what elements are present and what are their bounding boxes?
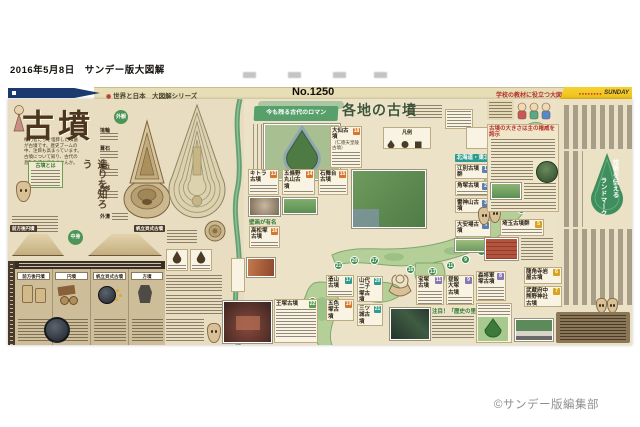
spot-note: 注目！「歴史の里」: [432, 307, 482, 315]
green-mound-photo: [283, 198, 317, 214]
kofun-name: 江別古墳群: [457, 166, 481, 179]
kofun-name: 武蔵府中熊野神社古墳: [526, 288, 552, 307]
kofun-card-text: [320, 185, 346, 195]
keyhole-mini-card: [190, 249, 212, 271]
gold-ornament-icon: [115, 298, 118, 301]
kofun-name: 造山古墳: [328, 277, 344, 290]
article-vertical-text: [562, 151, 583, 227]
sidebar-article-text: [491, 139, 555, 159]
date-line: 2016年5月8日 サンデー版大図解: [10, 62, 165, 76]
photo-caption: [521, 238, 553, 260]
kofun-card: キトラ古墳13: [248, 169, 279, 195]
column-divider: [128, 269, 129, 345]
copyright-credit: ©サンデー版編集部: [494, 396, 614, 412]
wall-painting-note: 壁画が有名: [249, 218, 277, 226]
sidebar-article-heading: 古墳の大きさは主の権威を誇示: [489, 126, 557, 138]
kofun-number-badge: 5: [535, 221, 542, 228]
pot-icon: [60, 296, 69, 305]
wall-painting-photo: [247, 258, 275, 277]
map-legend-box: 凡例: [383, 127, 431, 149]
kofun-card: 龍角寺岩屋古墳6: [524, 267, 562, 284]
kofun-card: 昼飯大塚古墳9: [446, 275, 474, 305]
timeline-caption: [132, 319, 163, 341]
kofun-card: 森将軍塚古墳8: [476, 271, 506, 301]
sidebar-article-text: [491, 161, 533, 181]
tomb-type-label: 前方後円墳: [17, 272, 50, 280]
label-funkyu-note: [100, 169, 118, 176]
kofun-card: 王塚古墳22: [274, 299, 318, 343]
bronze-mirror-icon: [98, 286, 116, 304]
kofun-card: 高松塚古墳16: [249, 226, 280, 248]
pot-icon: [69, 296, 78, 305]
dark-aerial-photo: [390, 308, 430, 340]
footnote-text: [560, 315, 626, 340]
article-keyhole-graphic: 技術を伝える ランドマーク: [585, 151, 629, 227]
kofun-card-text: [276, 309, 316, 339]
kofun-card-text: [448, 297, 472, 305]
sidebar-article-text: [524, 183, 556, 199]
kofun-card-text: [526, 283, 560, 284]
west-column-text: [166, 275, 222, 291]
kofun-name: 宝塚古墳: [418, 277, 434, 290]
kofun-card-text: [250, 185, 277, 195]
kofun-number-badge: 14: [306, 171, 313, 178]
water-area: [353, 209, 379, 227]
article-vertical-text: [562, 229, 632, 305]
page-body: 古墳 権力者たちを埋葬した墳墓が古墳です。歴史ブームの中、注目も高まっています。…: [8, 99, 632, 345]
dots-ornament: ●●●●●●●●: [579, 91, 602, 96]
mirror-photo: [44, 317, 70, 343]
kofun-card: 大仙古墳18 （仁徳天皇陵古墳）: [330, 126, 362, 168]
kofun-name: 王塚古墳: [276, 301, 298, 307]
kofun-card-text: [328, 291, 352, 297]
map-note-box: [466, 127, 488, 149]
kofun-card: 五色塚古墳19: [326, 299, 354, 321]
stone-chamber-photo: [249, 197, 280, 216]
kofun-number-badge: 6: [553, 269, 560, 276]
gold-ornament-icon: [116, 289, 119, 292]
kofun-card: 山代二子塚古墳20: [357, 276, 383, 302]
kofun-number-badge: 18: [353, 128, 360, 135]
kofun-card: 角塚古墳2: [455, 181, 491, 196]
kofun-name: 埼玉古墳群: [502, 221, 530, 227]
definition-box-text: [31, 170, 60, 187]
terraced-site-photo: [485, 238, 518, 260]
pottery-icon: [22, 285, 33, 303]
kofun-card: 五條野丸山古墳14: [282, 169, 315, 195]
issue-number: No.1250: [292, 86, 334, 98]
region-header: 北海道・東北: [455, 154, 491, 162]
kofun-number-badge: 9: [465, 277, 472, 284]
mound-cutaway-illustration: [120, 107, 170, 225]
map-marker: 9: [461, 255, 470, 264]
pennant-square: [12, 91, 16, 95]
newspaper-scan: 2016年5月8日 サンデー版大図解 ◉ 世界と日本 大図解シリーズ No.12…: [0, 0, 640, 427]
boat-haniwa-illustration: [385, 267, 415, 307]
train-photo: [515, 319, 553, 341]
brand-label: SUNDAY: [604, 90, 629, 96]
field-photo: [491, 183, 521, 199]
timeline-spine: [8, 261, 15, 345]
registration-mark: [374, 72, 387, 78]
kofun-definition-box: 古墳とは: [28, 161, 63, 188]
masthead-bar: ◉ 世界と日本 大図解シリーズ No.1250 学校の教材に役立つ大図解 ●●●…: [8, 87, 632, 99]
kofun-card-text: [418, 291, 442, 305]
photo-caption-vertical: [231, 258, 245, 292]
wood-artifact-icon: [57, 285, 75, 296]
keyhole-shape: [585, 151, 629, 227]
kofun-card: 宝塚古墳11: [416, 275, 444, 305]
kofun-card-text: [502, 229, 542, 236]
mini-card-text: [192, 265, 210, 270]
kofun-name: 大安場古墳: [457, 222, 481, 235]
kofun-name: 大仙古墳: [332, 128, 352, 141]
kofun-number-badge: 16: [271, 228, 278, 235]
kofun-number-badge: 15: [339, 171, 346, 178]
series-label: ◉ 世界と日本 大図解シリーズ: [106, 90, 197, 100]
chamber-detail: [236, 316, 260, 330]
keyhole-mini-card: [166, 249, 188, 271]
kofun-number-badge: 8: [497, 273, 504, 280]
timeline-caption: [94, 319, 126, 341]
kofun-card: 武蔵府中熊野神社古墳7: [524, 286, 562, 307]
round-mound-illustration: [204, 220, 226, 242]
armor-icon: [138, 285, 152, 303]
kofun-name: 石舞台古墳: [320, 171, 338, 184]
keyhole-quote-line2: ランドマーク: [597, 177, 607, 223]
kofun-name: 森将軍塚古墳: [478, 273, 496, 286]
column-divider: [90, 269, 91, 345]
label-haniwa-note: [100, 133, 118, 140]
map-marker: 20: [350, 256, 359, 265]
kofun-card: 江別古墳群1: [455, 164, 491, 179]
kofun-number-badge: 7: [553, 288, 560, 295]
pottery-icon: [35, 288, 46, 303]
tagline: 学校の教材に役立つ大図解: [496, 90, 568, 99]
kofun-card-text: [457, 236, 489, 237]
kofun-mini-card: [476, 303, 512, 343]
kofun-card-text: [332, 152, 360, 169]
label-fukiishi-note: [100, 151, 118, 158]
west-column-text: [166, 295, 222, 315]
spot-note-text: [432, 316, 474, 340]
kimono-figure-illustration: [11, 104, 26, 134]
restored-kofun-illustration: [478, 317, 508, 341]
keyhole-icon: [171, 251, 183, 265]
stone-circle-photo: [536, 161, 558, 183]
kofun-card: 埼玉古墳群5: [500, 219, 544, 236]
keyhole-quote-line1: 技術を伝える: [609, 159, 619, 207]
timeline-header-text: [19, 263, 161, 267]
legend-glyphs: [385, 140, 429, 149]
kofun-number-badge: 21: [374, 306, 381, 313]
kofun-card-text: [457, 191, 489, 196]
sidebar-article-text: [491, 202, 556, 209]
kofun-subname: （仁徳天皇陵古墳）: [332, 141, 360, 151]
kofun-number-badge: 19: [345, 301, 352, 308]
kofun-name: 五條野丸山古墳: [284, 171, 305, 190]
zenpo-badge: 前方後円墳: [10, 225, 37, 232]
map-marker: 21: [334, 261, 343, 270]
kofun-name: 龍角寺岩屋古墳: [526, 269, 552, 282]
plan-caption: [167, 230, 197, 243]
sidebar-article-box: 古墳の大きさは主の権威を誇示: [487, 124, 559, 212]
kofun-card: 造山古墳17: [326, 275, 354, 297]
kofun-card-text: [284, 191, 313, 195]
hotate-badge: 帆立貝式古墳: [134, 225, 165, 232]
footnote-box: [556, 312, 630, 343]
article-vertical-text: [562, 105, 632, 149]
kofun-name: 五色塚古墳: [328, 301, 344, 320]
kofun-number-badge: 17: [345, 277, 352, 284]
kofun-name: 角塚古墳: [457, 183, 479, 189]
mini-card-text: [168, 265, 186, 270]
kofun-card-text: [478, 287, 504, 301]
kofun-number-badge: 11: [435, 277, 442, 284]
map-marker: 17: [370, 256, 379, 265]
kofun-card-text: [251, 242, 278, 248]
sunday-tag: ●●●●●●●● SUNDAY: [560, 87, 632, 99]
west-column-text: [166, 319, 204, 341]
label-gaigo: 外濠: [100, 213, 110, 220]
nakami-badge: 中身: [68, 230, 83, 245]
kofun-number-badge: 22: [309, 301, 316, 308]
legend-title: 凡例: [385, 129, 429, 136]
timeline-table: 前方後円墳 円墳 帆立貝式古墳 方墳: [8, 261, 165, 345]
kofun-number-badge: 13: [270, 171, 277, 178]
masthead-pennant: [8, 88, 100, 98]
kofun-name: 高松塚古墳: [251, 228, 270, 241]
timeline-header: [15, 261, 165, 269]
kofun-card: 三ツ城古墳21: [357, 304, 383, 326]
registration-mark: [333, 72, 346, 78]
registration-mark: [243, 72, 256, 78]
gold-ornament-icon: [119, 294, 122, 297]
kofun-name: 三ツ城古墳: [359, 306, 373, 325]
tomb-type-label: 円墳: [55, 272, 88, 280]
registration-mark: [288, 72, 301, 78]
tomb-type-label: 方墳: [131, 272, 163, 280]
kofun-number-badge: 20: [374, 278, 381, 285]
kofun-card: 石舞台古墳15: [318, 169, 348, 195]
kofun-name: キトラ古墳: [250, 171, 269, 184]
kofun-name: 山代二子塚古墳: [359, 278, 373, 302]
large-aerial-photo: [352, 170, 426, 228]
label-naibu-note: [100, 191, 118, 198]
map-marker: 11: [446, 261, 455, 270]
mini-card-text: [478, 305, 510, 317]
kofun-name: 昼飯大塚古墳: [448, 277, 464, 296]
keyhole-icon: [195, 251, 207, 265]
tomb-type-label: 帆立貝式古墳: [93, 272, 126, 280]
tomb-chamber-photo: [223, 301, 272, 343]
definition-box-title: 古墳とは: [29, 162, 62, 169]
